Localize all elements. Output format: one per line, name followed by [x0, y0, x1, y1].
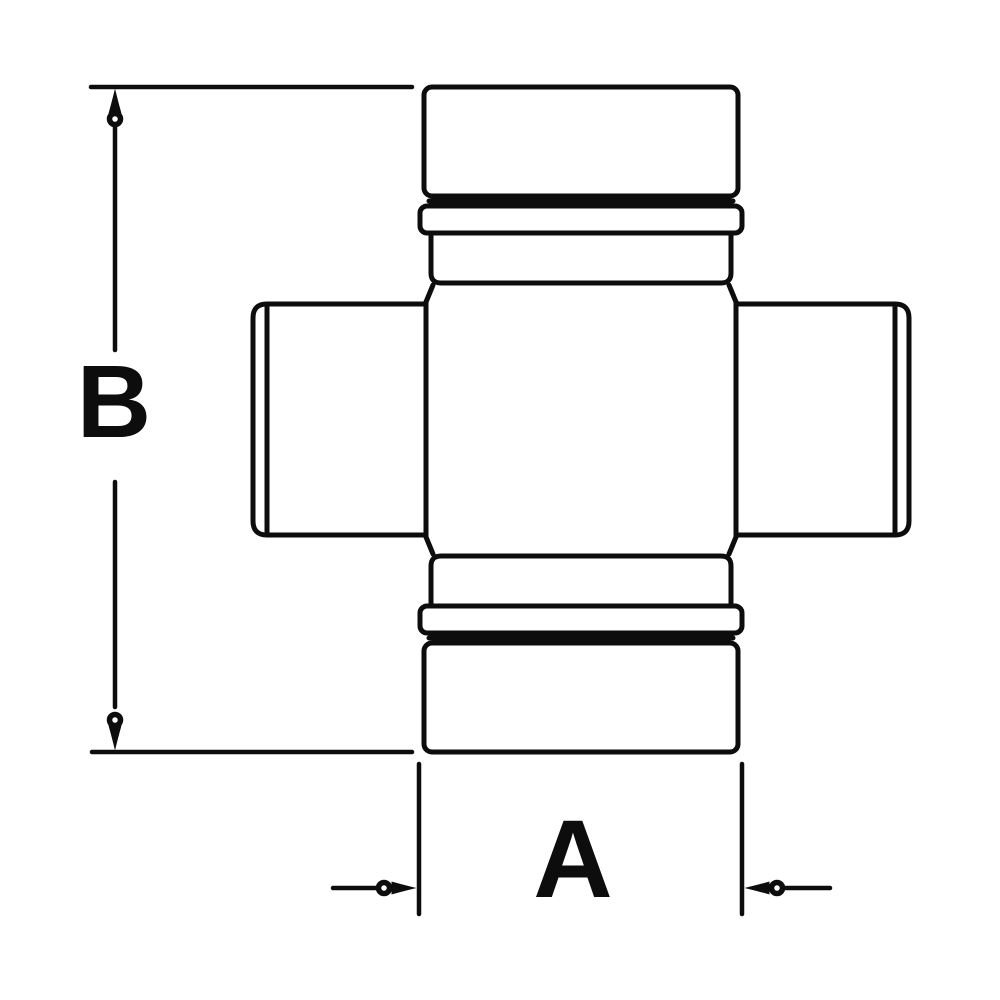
bottom-cap-body [424, 643, 738, 752]
bottom-cap-inner-section [431, 556, 731, 606]
ujoint-cross-diagram: B A [0, 0, 1000, 1000]
arrow-left-icon [745, 882, 783, 895]
bottom-cap-snap-ring-band [420, 606, 742, 633]
dim-b-label: B [77, 344, 151, 459]
top-cap-chamfers [426, 285, 736, 302]
dimension-b: B [77, 87, 412, 752]
right-cap-outline [736, 304, 909, 535]
part-outline [253, 87, 909, 752]
center-block-edges [426, 302, 736, 537]
bottom-cap-chamfers [426, 537, 736, 554]
arrow-right-icon [379, 882, 417, 895]
dimension-a: A [333, 764, 830, 921]
drawing-canvas: B A [0, 0, 1000, 1000]
linework: B A [77, 87, 909, 921]
arrow-up-icon [109, 89, 122, 125]
top-cap-body [424, 87, 738, 196]
top-cap-inner-section [431, 233, 731, 283]
top-cap-snap-ring-band [420, 206, 742, 233]
left-cap-outline [253, 304, 426, 535]
arrow-down-icon [109, 715, 122, 751]
dim-a-label: A [533, 798, 612, 921]
